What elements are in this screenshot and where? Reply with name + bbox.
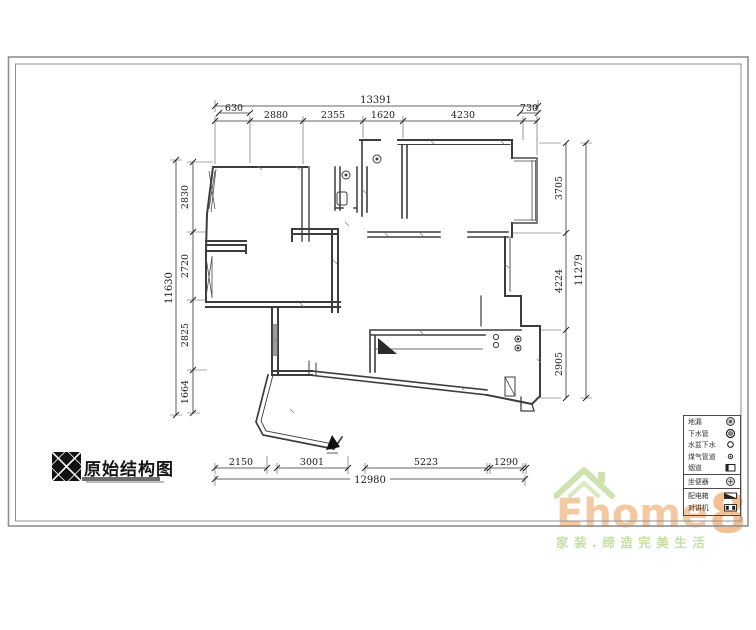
dim-left-total: 11630: [164, 272, 175, 304]
dim-top-total: 13391: [360, 95, 392, 106]
logo-letter-top: A: [63, 456, 69, 463]
dim-label: 2825: [180, 323, 191, 347]
sewer-pipe-icon: [724, 428, 737, 439]
title-underline-shadow: [86, 481, 164, 483]
dim-right-total: 11279: [574, 254, 585, 286]
dim-bottom-total: 12980: [354, 475, 386, 486]
burner: [493, 334, 498, 339]
basin-drain-icon: [724, 439, 737, 450]
legend-row: 煤气管道: [684, 451, 740, 463]
legend-label: 对讲机: [688, 502, 709, 512]
dim-label: 3705: [554, 176, 565, 200]
dim-label: 630: [225, 103, 243, 114]
legend-row: 水盆下水: [684, 439, 740, 451]
dim-label: 2880: [264, 110, 288, 121]
legend-label: 水盆下水: [688, 440, 716, 450]
legend-label: 下水管: [688, 428, 709, 438]
dim-label: 2355: [321, 110, 345, 121]
legend-row: 下水管: [684, 428, 740, 440]
power-box-icon: [724, 490, 737, 501]
dim-label: 5223: [414, 457, 438, 468]
counter-wedge: [378, 338, 397, 354]
legend-label: 地漏: [688, 417, 702, 427]
dim-bottom: 2150 3001 5223 1290 12980: [212, 456, 529, 486]
dim-top: 13391 630 2880 2355 1620 4230 730: [212, 95, 541, 164]
dim-label: 4230: [451, 110, 475, 121]
legend-row: 地漏: [684, 416, 740, 428]
legend-box: 地漏 下水管 水盆下水 煤气管道 烟道 坐便器 配电箱 对讲机: [683, 415, 741, 516]
logo-letter-right: B: [73, 464, 78, 471]
dim-label: 1620: [371, 110, 395, 121]
toilet-icon: [724, 476, 737, 487]
flue-icon: [724, 462, 737, 473]
burner: [493, 342, 498, 347]
dim-label: 2905: [554, 352, 565, 376]
dim-label: 730: [520, 103, 538, 114]
legend-label: 煤气管道: [688, 451, 716, 461]
dim-label: 2150: [229, 457, 253, 468]
legend-label: 烟道: [688, 463, 702, 473]
dim-label: 1664: [180, 380, 191, 404]
dim-label: 3001: [300, 457, 324, 468]
legend-row: 坐便器: [684, 474, 740, 488]
interior-ticks: [258, 140, 541, 413]
legend-row: 对讲机: [684, 502, 740, 514]
entry-arrow: [326, 435, 340, 453]
floor-drain-icon: [724, 416, 737, 427]
intercom-icon: [724, 502, 737, 513]
legend-row: 配电箱: [684, 488, 740, 502]
dim-label: 2830: [180, 185, 191, 209]
dim-label: 2720: [180, 254, 191, 278]
floor-plan-walls: [206, 140, 540, 449]
gas-pipe-icon: [724, 451, 737, 462]
logo-letter-left: D: [55, 464, 60, 471]
windows: [206, 158, 537, 356]
floor-plan-drawing: 13391 630 2880 2355 1620 4230 730 11630 …: [0, 0, 756, 630]
legend-label: 配电箱: [688, 490, 709, 500]
title-block: A D B 原始结构图: [52, 452, 174, 481]
drawing-sheet: Ehome8 家装.缔造完美生活: [0, 0, 756, 630]
legend-row: 烟道: [684, 462, 740, 474]
dxb-logo: A D B: [52, 452, 81, 481]
dim-right: 11279 3705 4224 2905: [512, 140, 592, 401]
legend-label: 坐便器: [688, 476, 709, 486]
dim-label: 1290: [494, 457, 518, 468]
dim-label: 4224: [554, 269, 565, 293]
toilet-symbol: [337, 192, 347, 205]
